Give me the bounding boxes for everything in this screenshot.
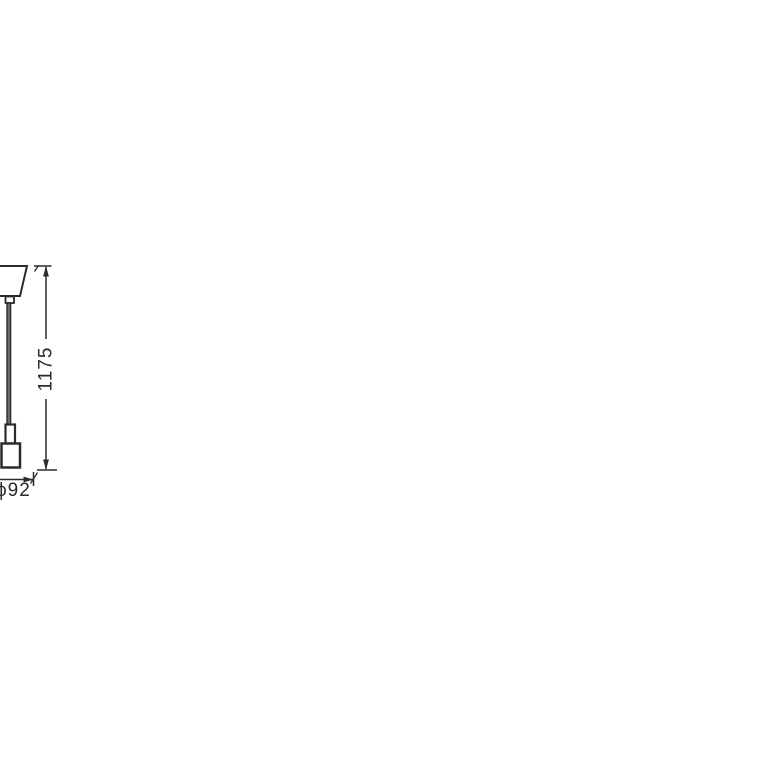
- lamp-canopy: [0, 266, 27, 296]
- pendant-lamp-dimension-drawing: 1175 ϕ92: [0, 0, 770, 770]
- lamp-outline: [0, 266, 27, 468]
- socket-strain-relief: [6, 425, 16, 444]
- lamp-socket: [2, 444, 21, 468]
- height-arrow-up-icon: [43, 266, 49, 277]
- pendant-cord: [7, 303, 11, 425]
- diameter-dimension-label: ϕ92: [0, 480, 31, 501]
- canopy-cord-grip: [6, 297, 15, 304]
- technical-drawing-page: 1175 ϕ92: [0, 0, 770, 770]
- height-dimension-label: 1175: [36, 347, 57, 392]
- height-arrow-down-icon: [43, 460, 49, 471]
